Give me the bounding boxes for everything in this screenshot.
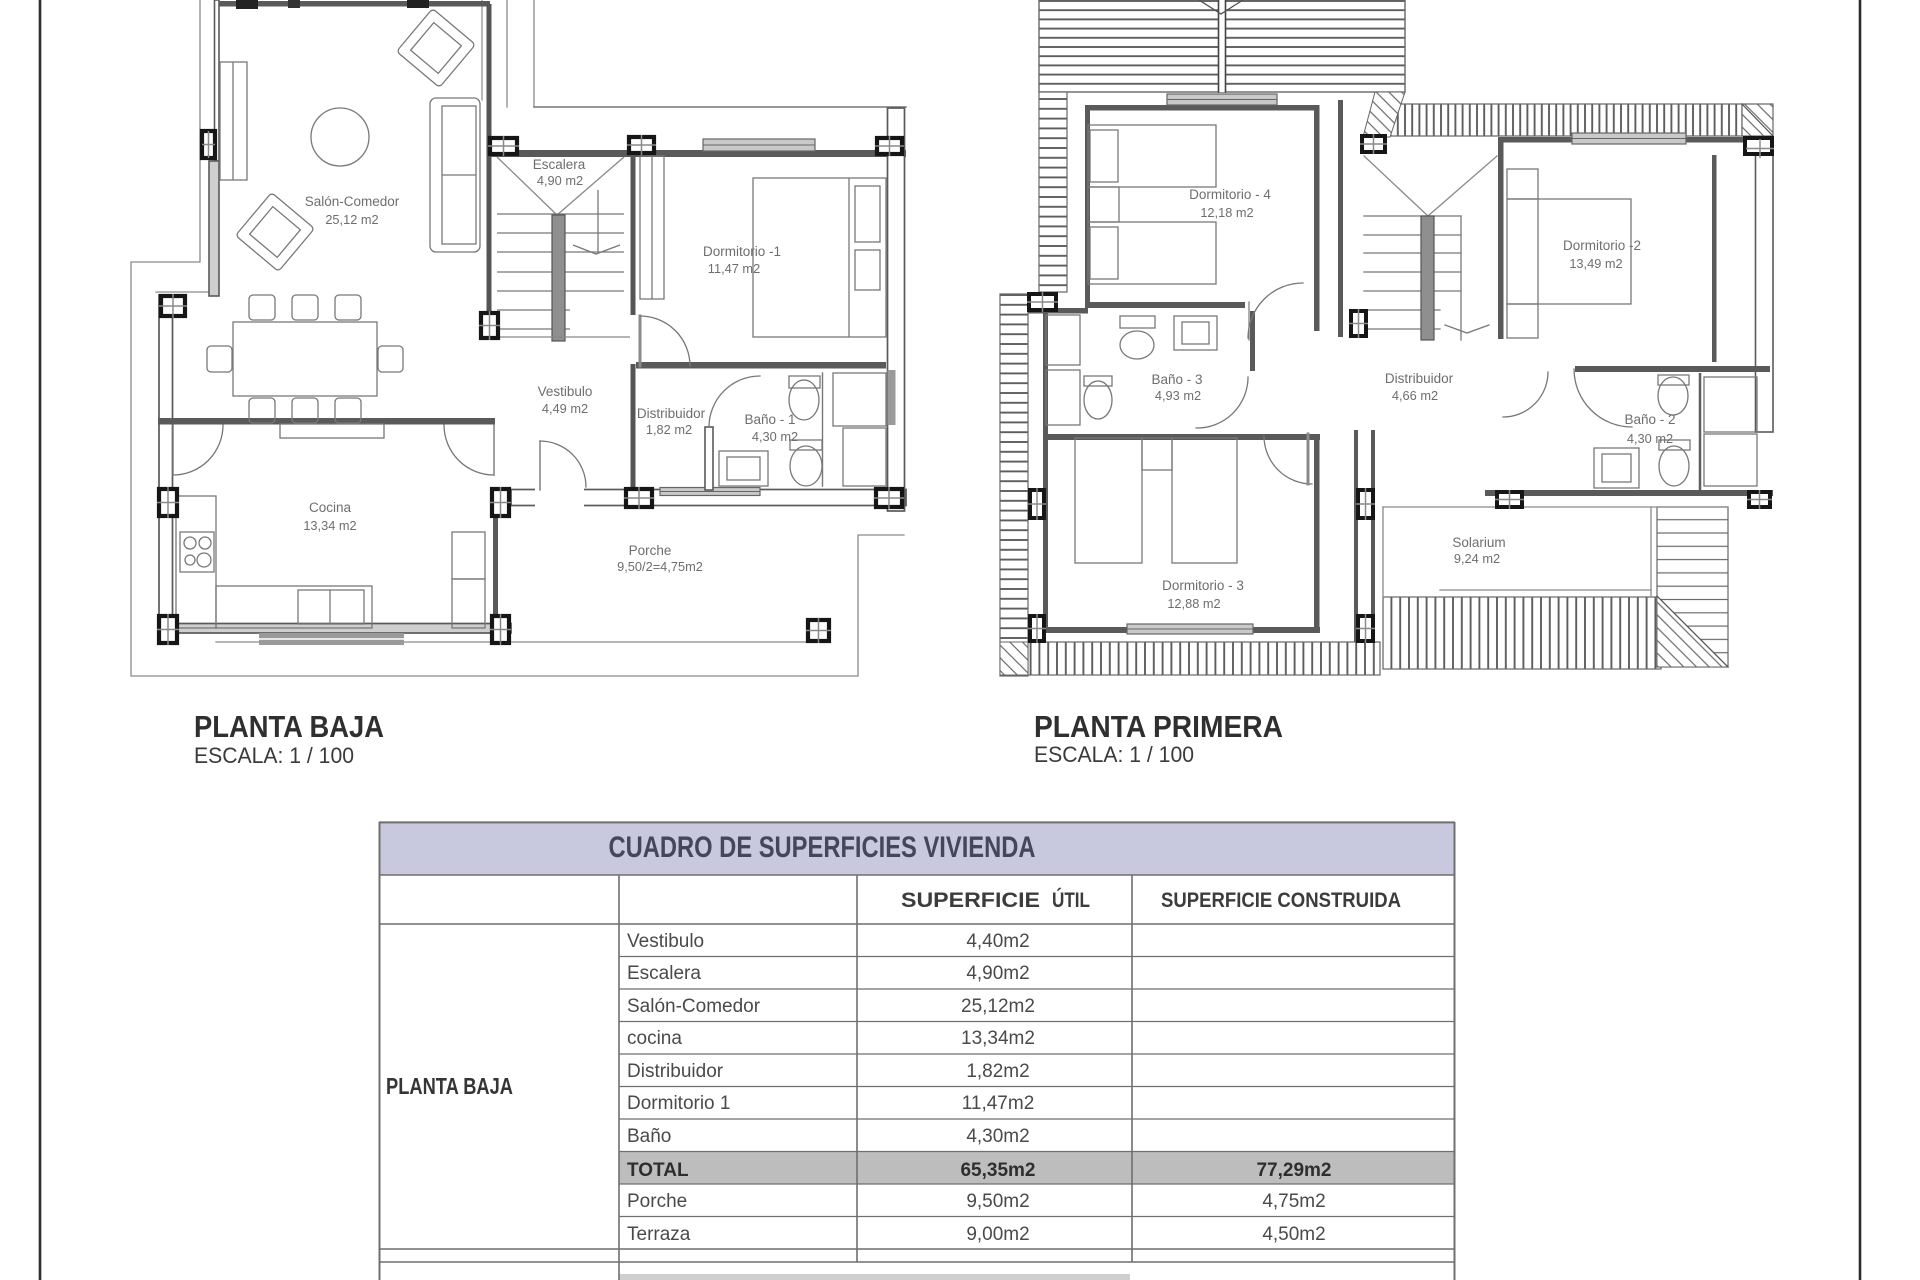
svg-text:11,47 m2: 11,47 m2	[708, 261, 760, 276]
svg-text:Distribuidor: Distribuidor	[1385, 371, 1454, 386]
svg-text:Dormitorio - 3: Dormitorio - 3	[1162, 578, 1244, 593]
svg-text:12,18 m2: 12,18 m2	[1200, 205, 1253, 220]
svg-text:4,90m2: 4,90m2	[966, 963, 1029, 984]
svg-text:4,50m2: 4,50m2	[1262, 1224, 1325, 1245]
svg-text:Dormitorio 1: Dormitorio 1	[627, 1093, 730, 1114]
svg-text:9,24 m2: 9,24 m2	[1454, 551, 1500, 566]
svg-text:Vestibulo: Vestibulo	[627, 931, 704, 952]
svg-text:Vestibulo: Vestibulo	[538, 384, 593, 399]
svg-text:4,40m2: 4,40m2	[966, 931, 1029, 952]
svg-text:Porche: Porche	[629, 543, 672, 558]
svg-text:Solarium: Solarium	[1452, 535, 1505, 550]
svg-text:ESCALA: 1 / 100: ESCALA: 1 / 100	[194, 743, 354, 768]
svg-text:CUADRO DE SUPERFICIES VIVIEND: CUADRO DE SUPERFICIES VIVIENDA	[609, 831, 1036, 864]
svg-text:9,50m2: 9,50m2	[966, 1191, 1029, 1212]
svg-text:4,75m2: 4,75m2	[1262, 1191, 1325, 1212]
svg-text:Cocina: Cocina	[309, 500, 352, 515]
svg-text:SUPERFICIE: SUPERFICIE	[901, 889, 1040, 912]
svg-text:cocina: cocina	[627, 1028, 682, 1049]
svg-text:Dormitorio - 4: Dormitorio - 4	[1189, 187, 1271, 202]
svg-text:13,34m2: 13,34m2	[961, 1028, 1035, 1049]
svg-text:Distribuidor: Distribuidor	[627, 1061, 724, 1082]
svg-text:4,30 m2: 4,30 m2	[752, 429, 798, 444]
svg-text:Terraza: Terraza	[627, 1224, 691, 1245]
svg-text:25,12 m2: 25,12 m2	[325, 212, 378, 227]
svg-text:4,30m2: 4,30m2	[966, 1126, 1029, 1147]
svg-text:PLANTA BAJA: PLANTA BAJA	[194, 709, 384, 744]
svg-text:Baño: Baño	[627, 1126, 671, 1147]
svg-text:13,34 m2: 13,34 m2	[303, 518, 356, 533]
svg-text:4,90 m2: 4,90 m2	[537, 173, 583, 188]
svg-text:Escalera: Escalera	[533, 157, 586, 172]
svg-text:Porche: Porche	[627, 1191, 687, 1212]
svg-text:Escalera: Escalera	[627, 963, 701, 984]
svg-text:65,35m2: 65,35m2	[960, 1160, 1035, 1181]
svg-text:Dormitorio -2: Dormitorio -2	[1563, 238, 1641, 253]
svg-text:SUPERFICIE CONSTRUIDA: SUPERFICIE CONSTRUIDA	[1161, 889, 1401, 912]
svg-text:1,82 m2: 1,82 m2	[646, 422, 692, 437]
svg-text:ÚTIL: ÚTIL	[1052, 888, 1090, 912]
svg-text:9,50/2=4,75m2: 9,50/2=4,75m2	[617, 559, 703, 574]
svg-text:4,30 m2: 4,30 m2	[1627, 431, 1673, 446]
svg-text:Salón-Comedor: Salón-Comedor	[627, 996, 761, 1017]
svg-text:Dormitorio -1: Dormitorio -1	[703, 244, 781, 259]
svg-text:PLANTA BAJA: PLANTA BAJA	[386, 1073, 513, 1099]
svg-text:4,66 m2: 4,66 m2	[1392, 388, 1438, 403]
svg-text:ESCALA: 1 / 100: ESCALA: 1 / 100	[1034, 742, 1194, 767]
svg-text:PLANTA PRIMERA: PLANTA PRIMERA	[1034, 709, 1283, 744]
svg-text:77,29m2: 77,29m2	[1256, 1160, 1331, 1181]
svg-text:9,00m2: 9,00m2	[966, 1224, 1029, 1245]
svg-text:Salón-Comedor: Salón-Comedor	[305, 194, 400, 209]
svg-text:Baño - 2: Baño - 2	[1624, 412, 1675, 427]
svg-text:Distribuidor: Distribuidor	[637, 406, 706, 421]
svg-text:4,49 m2: 4,49 m2	[542, 401, 588, 416]
svg-text:13,49 m2: 13,49 m2	[1569, 256, 1622, 271]
svg-text:11,47m2: 11,47m2	[962, 1093, 1035, 1114]
svg-text:Baño - 1: Baño - 1	[744, 412, 795, 427]
svg-text:12,88 m2: 12,88 m2	[1167, 596, 1220, 611]
svg-text:Baño - 3: Baño - 3	[1151, 372, 1202, 387]
svg-text:1,82m2: 1,82m2	[966, 1061, 1029, 1082]
svg-text:TOTAL: TOTAL	[627, 1160, 689, 1181]
svg-text:25,12m2: 25,12m2	[961, 996, 1035, 1017]
svg-text:4,93 m2: 4,93 m2	[1155, 388, 1201, 403]
